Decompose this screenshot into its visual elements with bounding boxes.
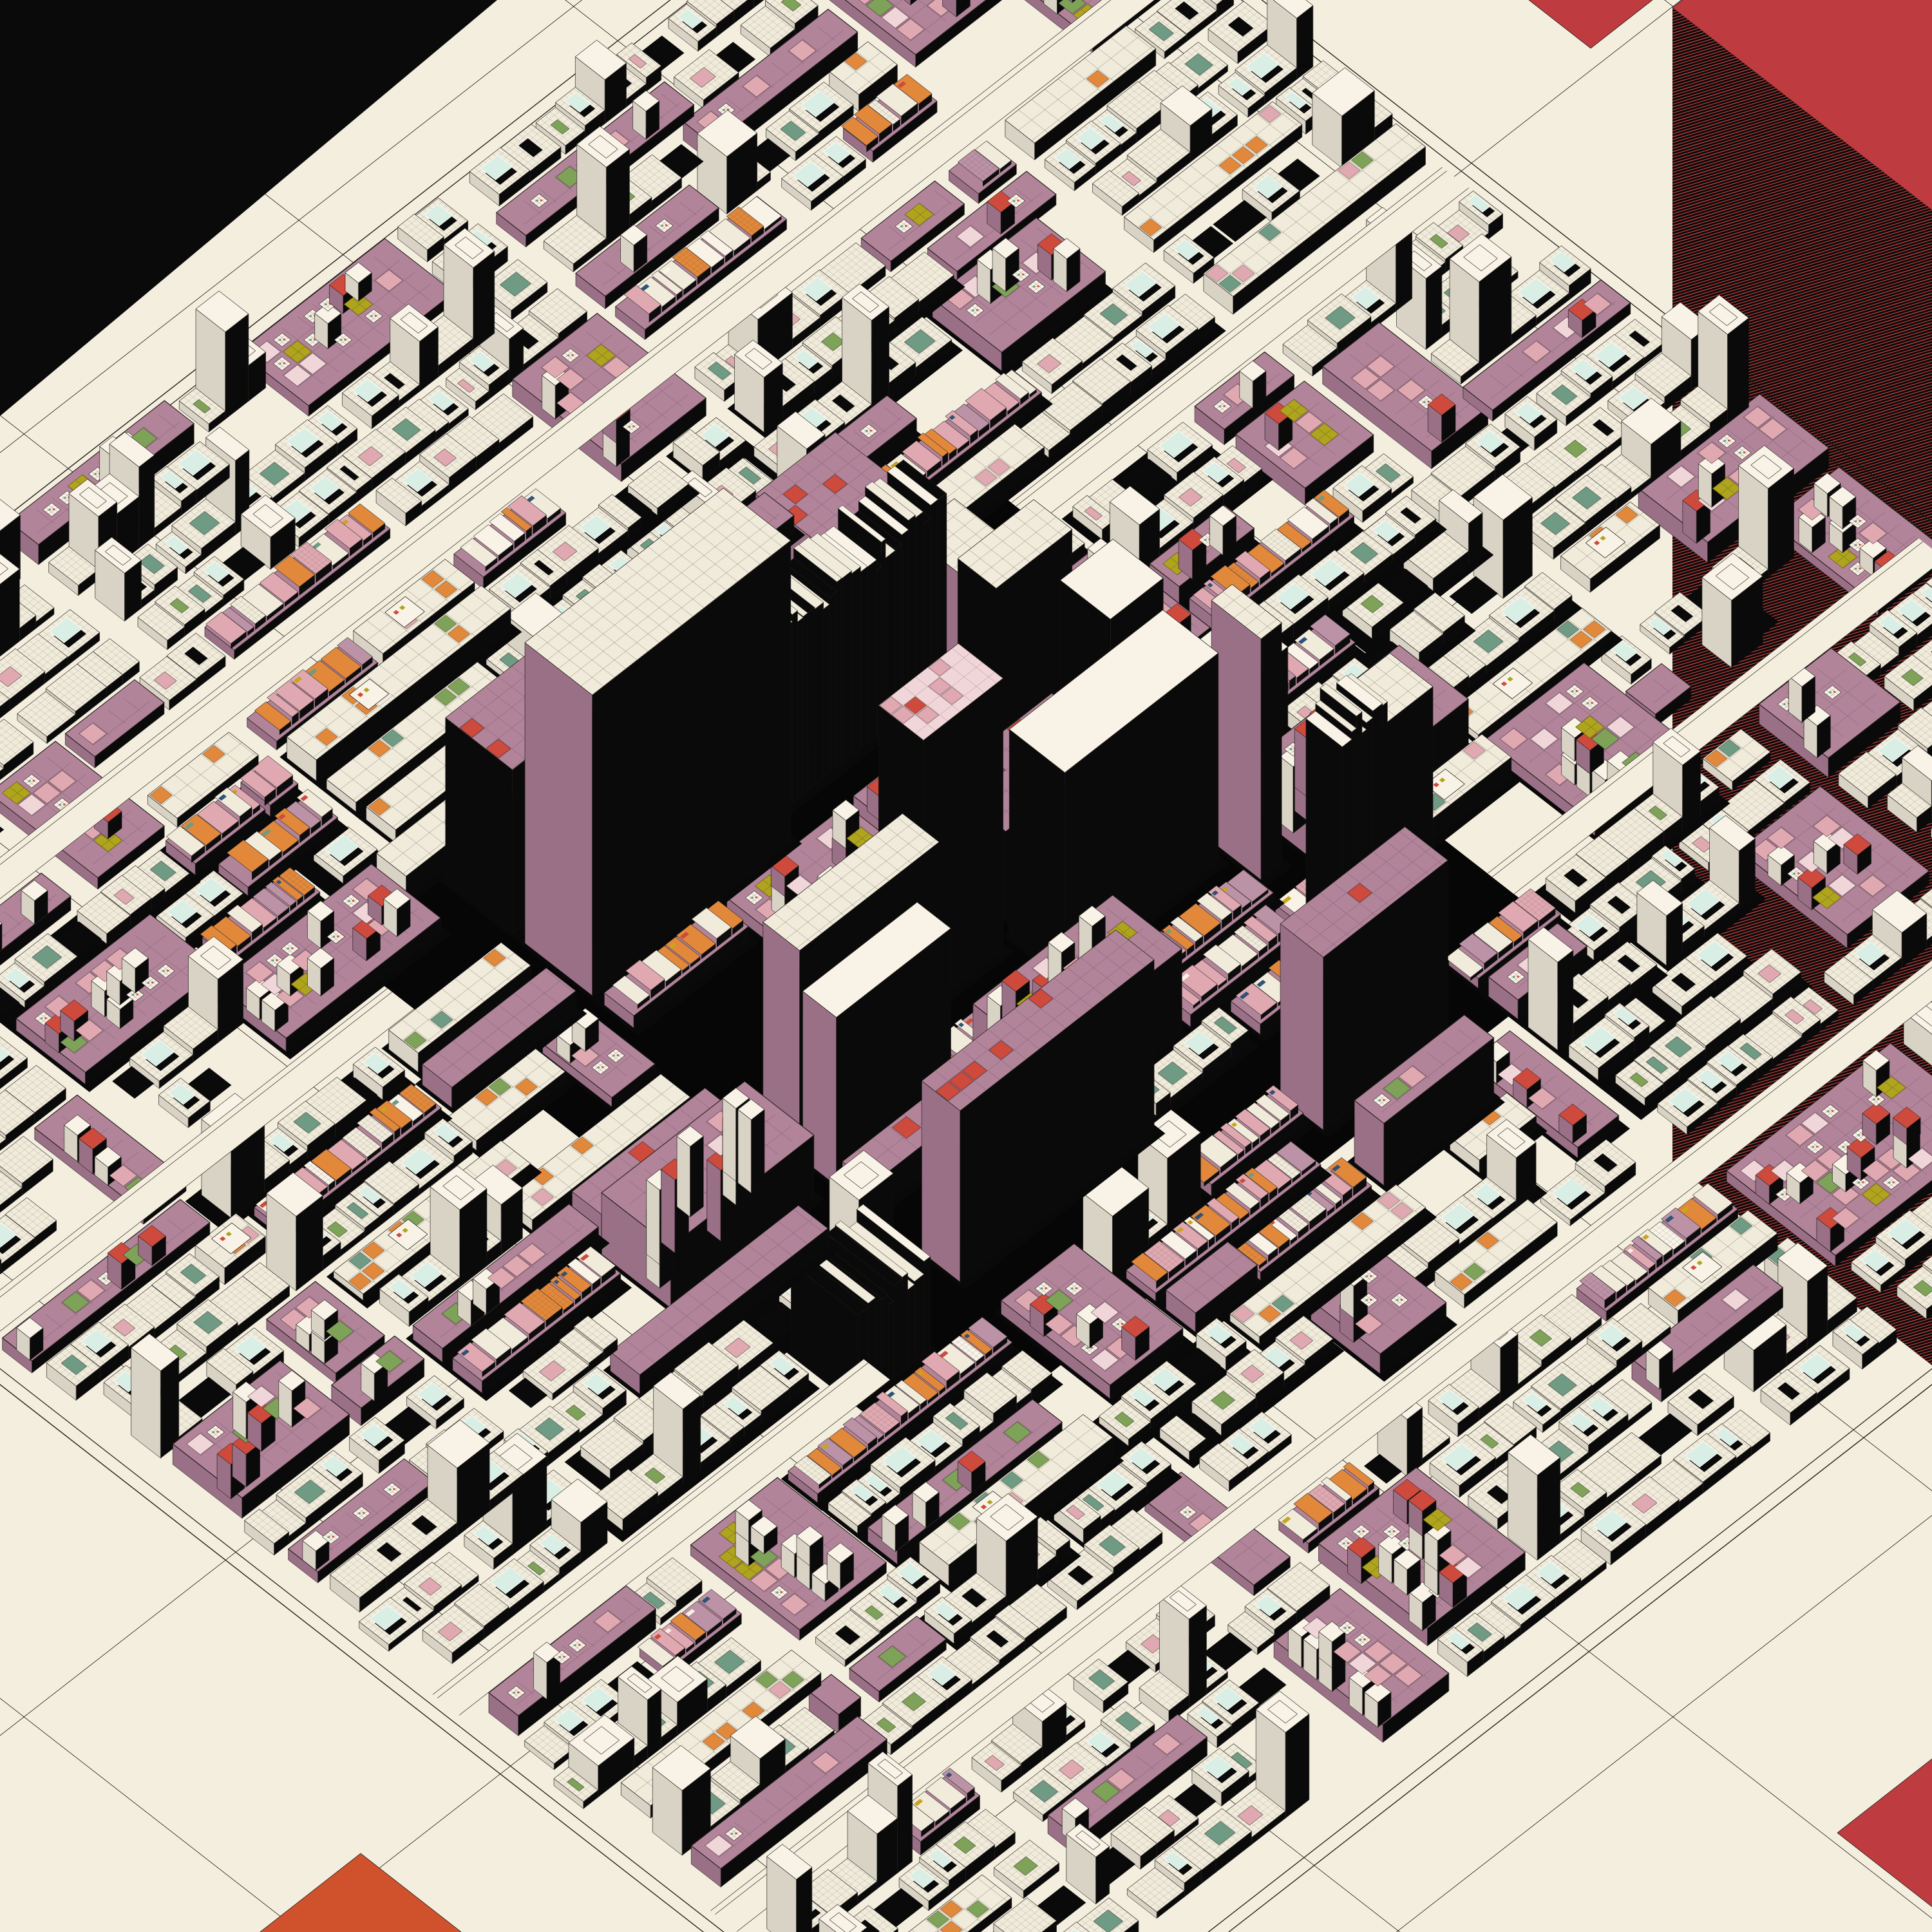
isometric-city-canvas xyxy=(0,0,1932,1932)
artboard: Generative isometric artwork: a large ro… xyxy=(0,0,1932,1932)
